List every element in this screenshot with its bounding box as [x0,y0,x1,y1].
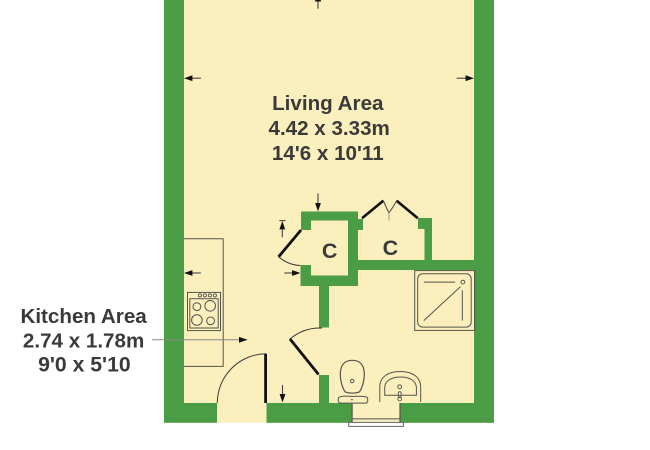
svg-text:14'6 x 10'11: 14'6 x 10'11 [272,142,384,165]
svg-text:C: C [383,236,399,260]
svg-text:Kitchen Area: Kitchen Area [20,305,147,328]
svg-text:2.74 x 1.78m: 2.74 x 1.78m [23,329,144,352]
svg-text:4.42 x 3.33m: 4.42 x 3.33m [269,117,390,140]
svg-text:9'0 x 5'10: 9'0 x 5'10 [38,354,131,377]
svg-text:C: C [322,239,338,263]
svg-text:Living Area: Living Area [272,92,384,115]
